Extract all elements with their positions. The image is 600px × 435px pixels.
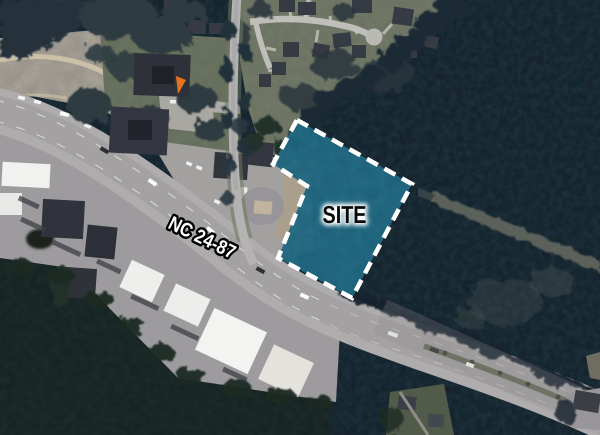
svg-text:SITE: SITE — [323, 202, 367, 229]
